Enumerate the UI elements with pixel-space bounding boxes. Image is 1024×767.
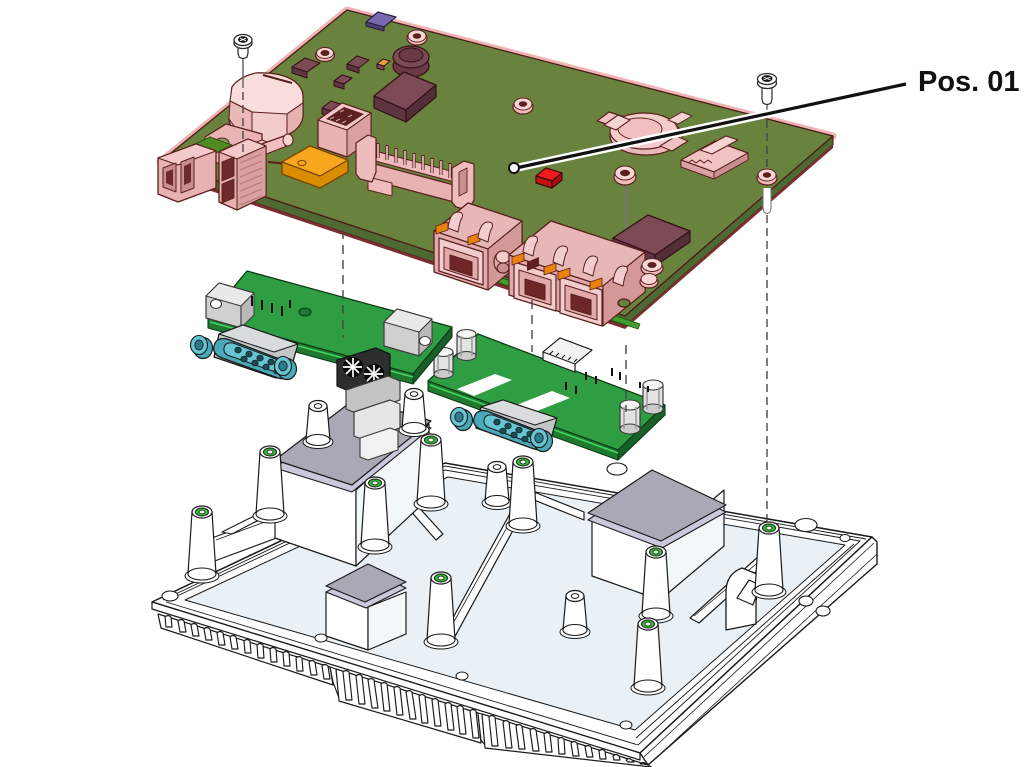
svg-text:Pos. 01: Pos. 01 — [918, 66, 1020, 98]
